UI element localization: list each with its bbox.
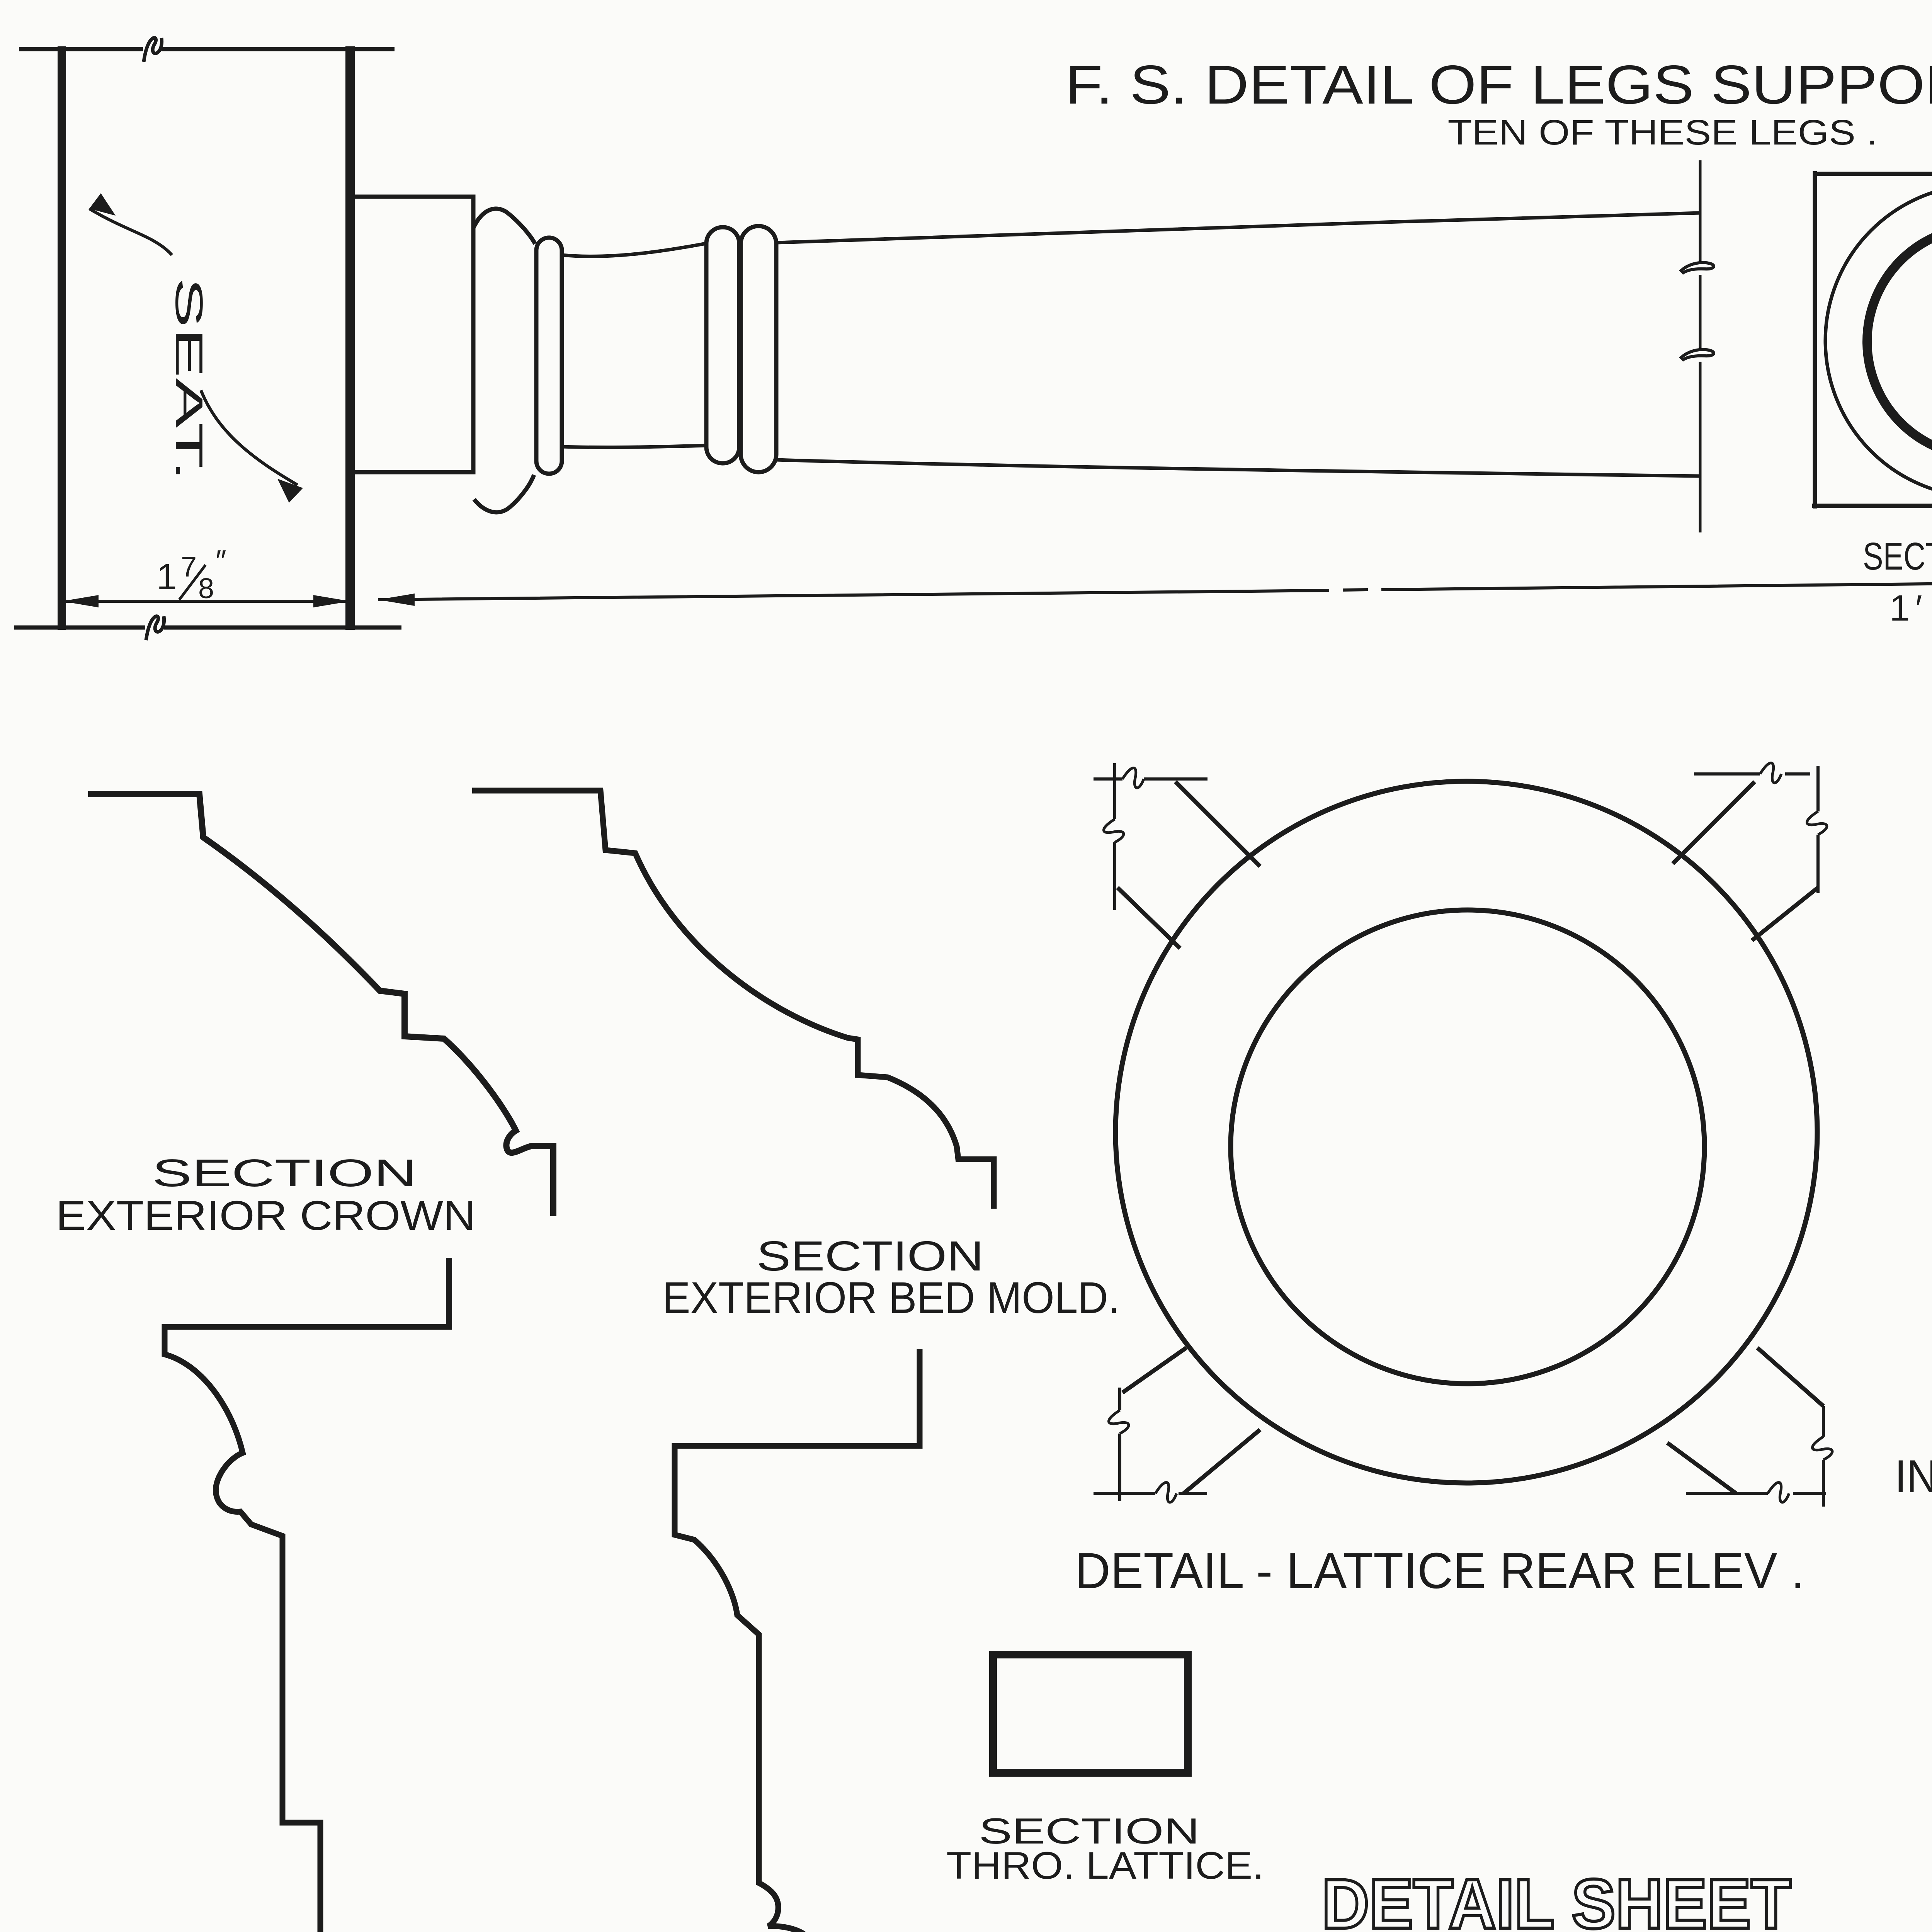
svg-text:SECTION: SECTION (152, 1151, 417, 1195)
svg-text:EXTERIOR BED MOLD.: EXTERIOR BED MOLD. (662, 1273, 1120, 1323)
svg-text:F. S. DETAIL OF LEGS SUPPORTIN: F. S. DETAIL OF LEGS SUPPORTING SEAT. (1065, 54, 1932, 116)
svg-text:″: ″ (216, 544, 226, 578)
svg-text:SEAT.: SEAT. (167, 277, 211, 481)
svg-text:1: 1 (156, 556, 177, 597)
svg-text:INTERIOR CROWN .: INTERIOR CROWN . (1895, 1451, 1932, 1502)
svg-text:8: 8 (198, 572, 214, 604)
svg-text:DETAIL - LATTICE REAR ELEV .: DETAIL - LATTICE REAR ELEV . (1075, 1542, 1805, 1599)
svg-text:DETAIL SHEET: DETAIL SHEET (1322, 1864, 1791, 1932)
svg-text:1′ - 5: 1′ - 5 (1889, 588, 1932, 629)
svg-text:SECTION .: SECTION . (1863, 535, 1932, 578)
svg-text:THRO. LATTICE.: THRO. LATTICE. (946, 1844, 1264, 1887)
svg-text:EXTERIOR CROWN: EXTERIOR CROWN (56, 1192, 476, 1239)
svg-text:SECTION: SECTION (757, 1233, 984, 1280)
svg-text:TEN OF THESE LEGS .: TEN OF THESE LEGS . (1448, 113, 1878, 152)
